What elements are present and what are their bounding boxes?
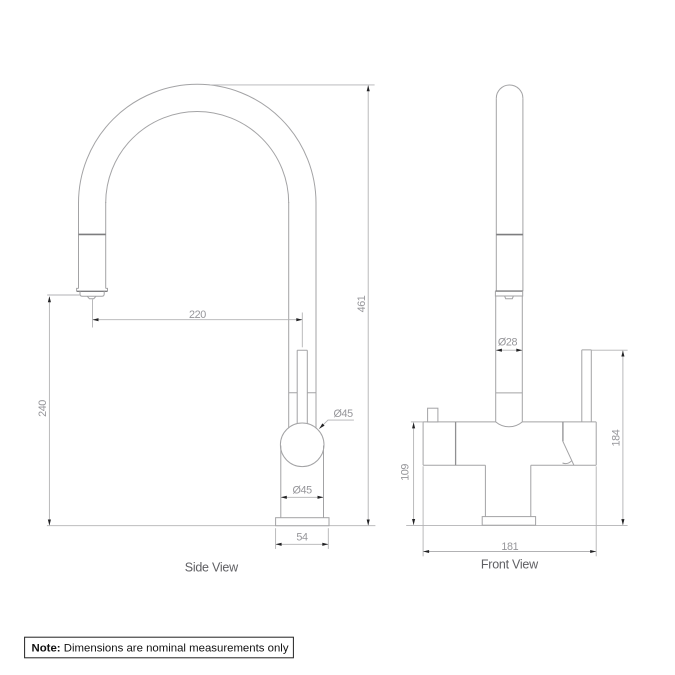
svg-text:220: 220 bbox=[189, 309, 206, 321]
svg-text:Note: Dimensions are nominal m: Note: Dimensions are nominal measurement… bbox=[32, 643, 289, 655]
svg-text:Ø28: Ø28 bbox=[498, 337, 518, 349]
svg-text:109: 109 bbox=[400, 464, 412, 481]
svg-text:Ø45: Ø45 bbox=[292, 485, 312, 497]
svg-text:Side View: Side View bbox=[185, 561, 239, 575]
svg-text:240: 240 bbox=[37, 400, 49, 417]
svg-text:Ø45: Ø45 bbox=[334, 408, 354, 420]
svg-text:54: 54 bbox=[296, 532, 308, 544]
svg-text:461: 461 bbox=[356, 295, 368, 312]
svg-text:Front View: Front View bbox=[481, 557, 539, 571]
svg-text:181: 181 bbox=[501, 541, 518, 553]
svg-text:184: 184 bbox=[611, 429, 623, 446]
